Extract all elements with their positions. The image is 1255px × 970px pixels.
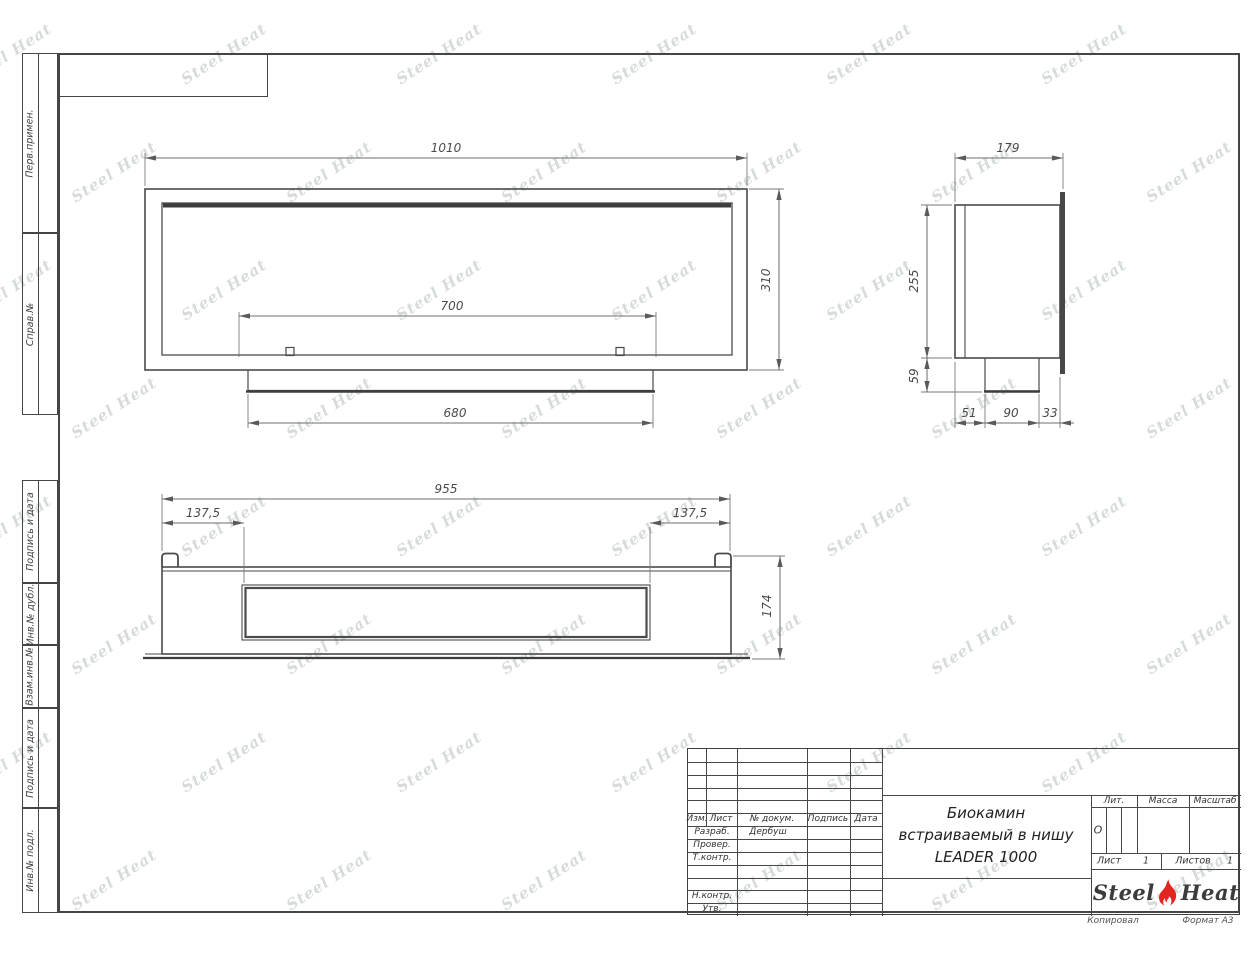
designation-box-top — [58, 53, 268, 97]
strip-divider — [38, 709, 39, 807]
dim-front-opening: 700 — [441, 299, 464, 313]
strip-box-perv-primen: Перв.примен. — [22, 53, 58, 233]
dim-side-depth: 179 — [997, 141, 1020, 155]
row-nkontr-label: Н.контр. — [692, 891, 732, 901]
doc-title-line2: встраиваемый в нишу — [899, 826, 1074, 844]
lit-value: О — [1094, 824, 1103, 837]
format-note: Формат А3 — [1182, 916, 1233, 926]
side-tray — [985, 358, 1039, 391]
dim-front-width: 1010 — [431, 141, 462, 155]
dim-front-height: 310 — [759, 268, 773, 291]
dim-side-body-height: 255 — [907, 270, 921, 293]
strip-divider — [38, 234, 39, 414]
strip-box-inv-dubl: Инв.№ дубл. — [22, 583, 58, 645]
strip-label: Перв.примен. — [25, 109, 36, 177]
row-tkontr-label: Т.контр. — [692, 853, 731, 863]
dim-side-tray-height: 59 — [907, 368, 921, 383]
dim-bottom-depth: 174 — [760, 595, 774, 618]
rev-col-list: Лист — [710, 814, 733, 824]
title-block: Изм. Лист № докум. Подпись Дата Разраб. … — [687, 748, 1240, 915]
rev-col-date: Дата — [854, 814, 877, 824]
drawing-sheet: Steel HeatSteel HeatSteel HeatSteel Heat… — [0, 0, 1255, 970]
row-razrab-label: Разраб. — [694, 827, 729, 837]
strip-label: Инв.№ дубл. — [25, 583, 36, 645]
massa-header: Масса — [1149, 796, 1178, 806]
strip-label: Справ.№ — [25, 302, 36, 345]
lit-header: Лит. — [1104, 796, 1125, 806]
strip-label: Инв.№ подл. — [25, 829, 36, 892]
front-right-tab — [616, 348, 624, 356]
bottom-right-hook — [715, 554, 731, 568]
row-prover-label: Провер. — [693, 840, 730, 850]
row-razrab-name: Дербуш — [749, 827, 786, 837]
flame-icon — [1157, 879, 1179, 907]
doc-title-line1: Биокамин — [947, 804, 1025, 822]
strip-box-sprav-no: Справ.№ — [22, 233, 58, 415]
strip-label: Подпись и дата — [25, 492, 36, 571]
strip-box-inv-podl: Инв.№ подл. — [22, 808, 58, 913]
sheet-label: Лист — [1097, 856, 1121, 867]
strip-divider — [38, 54, 39, 232]
doc-title-line3: LEADER 1000 — [935, 848, 1038, 866]
front-left-tab — [286, 348, 294, 356]
strip-label: Подпись и дата — [25, 719, 36, 798]
strip-box-vzam-inv: Взам.инв.№ — [22, 645, 58, 708]
front-view: 1010 310 700 680 — [145, 141, 784, 428]
dim-bottom-width: 955 — [435, 482, 458, 496]
side-view: 179 255 59 51 90 33 — [907, 141, 1074, 428]
sheets-value: 1 — [1227, 856, 1233, 867]
logo-text-heat: Heat — [1181, 880, 1240, 905]
kopiroval-note: Копировал — [1087, 916, 1138, 926]
company-logo: Steel Heat — [1091, 869, 1241, 916]
strip-box-podpis-data-2: Подпись и дата — [22, 708, 58, 808]
logo-text-steel: Steel — [1093, 880, 1155, 905]
sheet-value: 1 — [1143, 856, 1149, 867]
bottom-opening-inner — [246, 588, 647, 637]
strip-box-podpis-data-1: Подпись и дата — [22, 480, 58, 583]
strip-divider — [38, 809, 39, 912]
front-outer-body — [145, 189, 747, 370]
strip-label: Взам.инв.№ — [25, 647, 36, 705]
strip-divider — [38, 646, 39, 707]
sheets-label: Листов — [1175, 856, 1211, 867]
bottom-left-hook — [162, 554, 178, 568]
rev-col-doc: № докум. — [750, 814, 794, 824]
strip-divider — [38, 584, 39, 644]
rev-col-sign: Подпись — [808, 814, 848, 824]
rev-col-izm: Изм. — [686, 814, 707, 824]
bottom-opening-outer — [242, 585, 650, 640]
dim-side-back-offset: 51 — [961, 406, 976, 420]
front-opening — [162, 203, 732, 355]
dim-bottom-offset-left: 137,5 — [186, 506, 220, 520]
dim-front-tray: 680 — [444, 406, 467, 420]
dim-side-tray-width: 90 — [1003, 406, 1019, 420]
front-tray — [248, 370, 653, 391]
side-front-plate — [1060, 192, 1065, 374]
strip-divider — [38, 481, 39, 582]
side-body — [955, 205, 1060, 358]
dim-bottom-offset-right: 137,5 — [673, 506, 707, 520]
dim-side-front-offset: 33 — [1042, 406, 1057, 420]
bottom-view: 955 137,5 137,5 174 — [143, 482, 785, 659]
masshtab-header: Масштаб — [1194, 796, 1237, 806]
row-utv-label: Утв. — [703, 904, 722, 914]
